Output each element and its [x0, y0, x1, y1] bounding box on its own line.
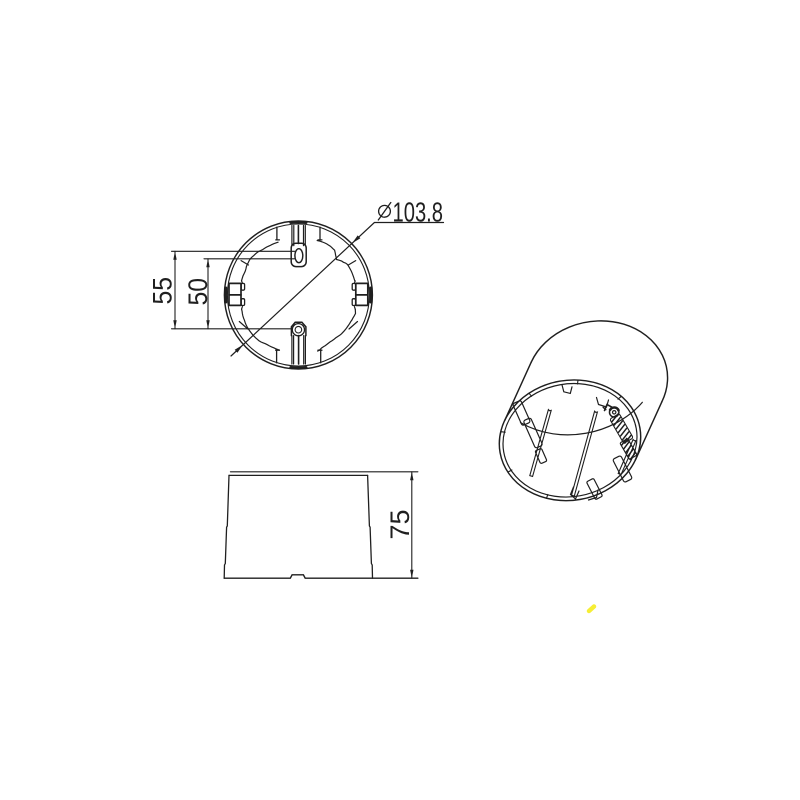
svg-text:50: 50 [183, 278, 213, 306]
svg-text:55: 55 [148, 277, 178, 305]
svg-text:103.8: 103.8 [393, 196, 444, 227]
svg-text:75: 75 [385, 510, 415, 540]
